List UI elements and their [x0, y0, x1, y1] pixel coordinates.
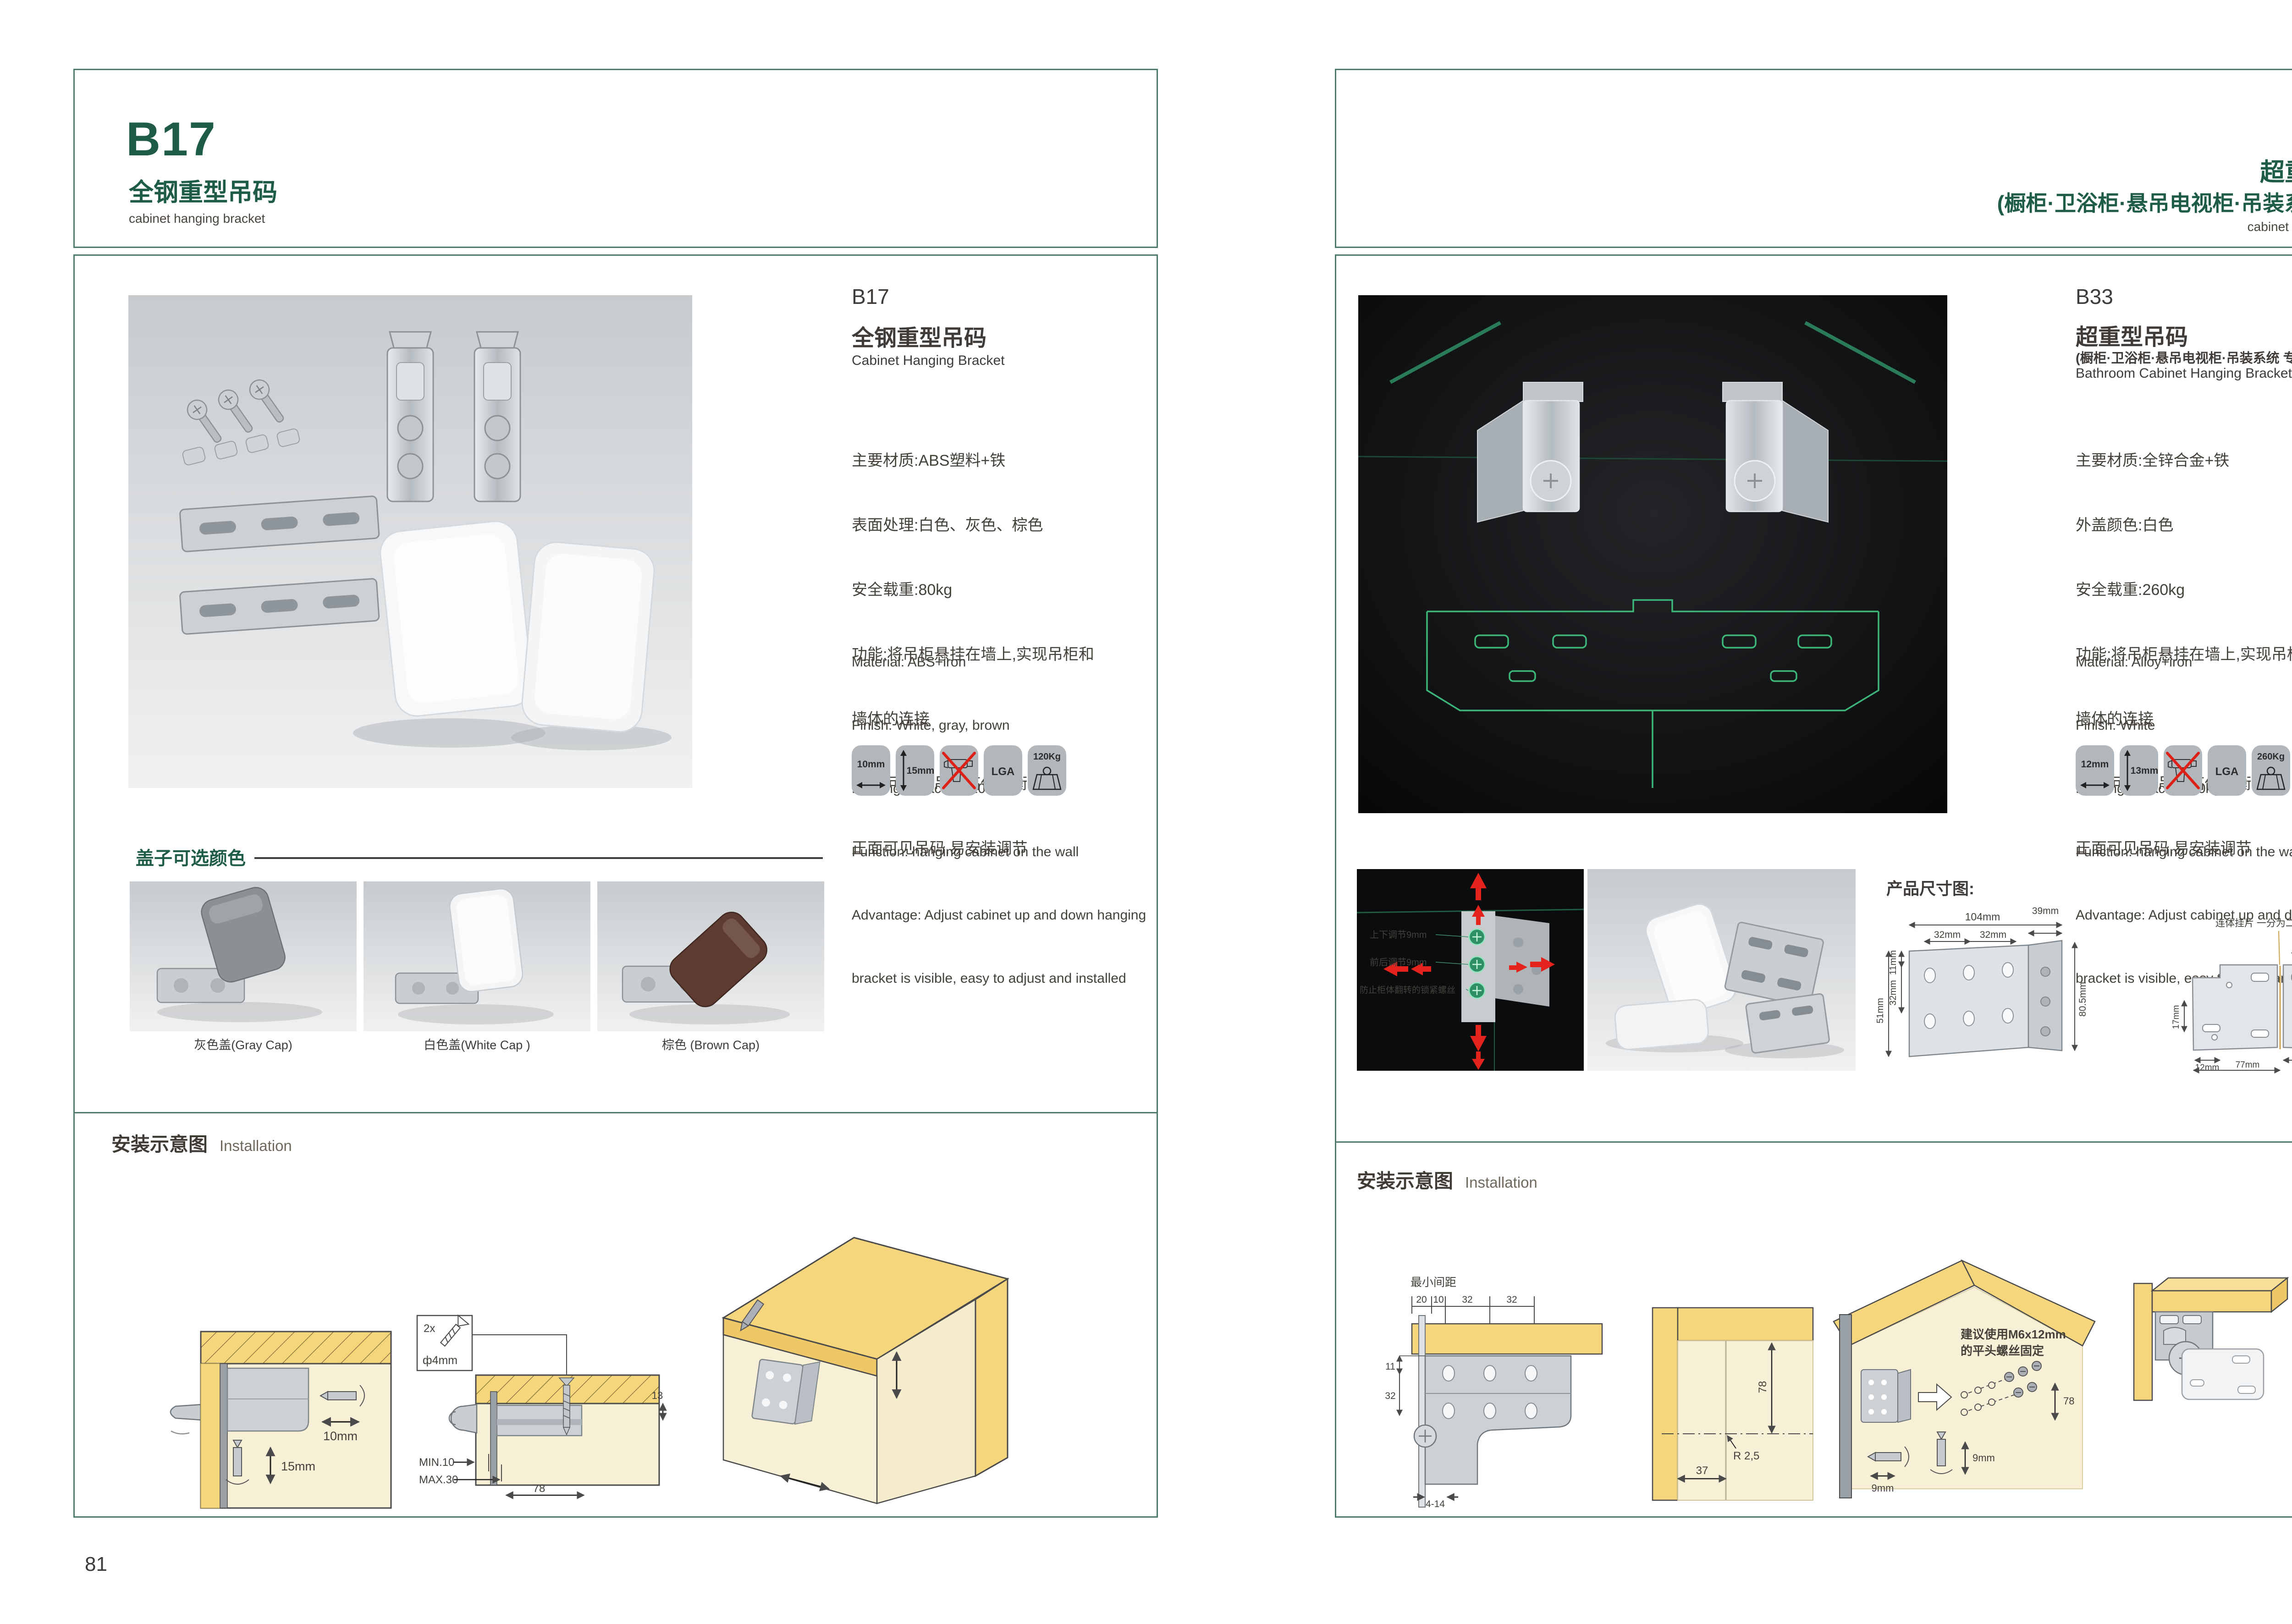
hanger-hook — [449, 1404, 477, 1433]
b33-parts-photo — [1587, 869, 1856, 1071]
gray-cap-label: 灰色盖(Gray Cap) — [130, 1035, 357, 1053]
white-cap-label: 白色盖(White Cap ) — [364, 1035, 590, 1053]
left-page-header: B17 全钢重型吊码 cabinet hanging bracket — [73, 69, 1158, 248]
dim-32mm-b: 32mm — [1980, 930, 2006, 940]
left-header-code: B17 — [126, 112, 216, 167]
no-drill-icon — [942, 751, 976, 790]
badge-no-drill — [940, 745, 978, 796]
right-install-divider — [1336, 1141, 2292, 1143]
white-cap — [448, 887, 524, 993]
right-page-content: B33 超重型吊码 (橱柜·卫浴柜·悬吊电视柜·吊装系统 专用) Bathroo… — [1335, 254, 2292, 1518]
dim-max: MAX.30 — [419, 1474, 458, 1486]
b17-name-en: Cabinet Hanging Bracket — [852, 353, 1005, 369]
badge-height: 15mm — [896, 745, 934, 796]
b17-badges: 10mm 15mm — [852, 745, 1066, 796]
annotation-updown: 上下调节9mm — [1370, 930, 1427, 940]
badge-lga: LGA — [984, 745, 1022, 796]
b33-badges: 12mm 13mm — [2076, 745, 2290, 796]
dim-51mm: 51mm — [1875, 998, 1885, 1024]
b33-name-cn: 超重型吊码 — [2076, 319, 2188, 352]
dim-37: 37 — [1696, 1464, 1708, 1477]
dim-10mm: 10mm — [323, 1429, 358, 1443]
dim-11mm: 11mm — [1888, 950, 1898, 975]
dim-11: 11 — [1385, 1361, 1395, 1372]
dim-r25: R 2,5 — [1733, 1450, 1759, 1462]
metal-plate-2 — [1746, 993, 1829, 1053]
b33-name-en: Bathroom Cabinet Hanging Bracket — [2076, 366, 2292, 381]
b17-name-cn: 全钢重型吊码 — [852, 320, 986, 352]
b17-product-photo — [128, 295, 692, 788]
weight-icon — [1032, 766, 1062, 791]
right-page-header: B33 超重型吊码 (橱柜·卫浴柜·悬吊电视柜·吊装系统 专用) cabinet… — [1335, 69, 2292, 248]
badge-width: 12mm — [2076, 745, 2114, 796]
dim-78: 78 — [533, 1482, 545, 1495]
brown-cap-label: 棕色 (Brown Cap) — [597, 1035, 824, 1053]
b17-install-diagram-cabinet — [691, 1201, 1026, 1513]
screw-note-1: 建议使用M6x12mm — [1961, 1327, 2066, 1341]
split-plate-label: 连体挂片 一分为二 — [2215, 918, 2292, 929]
badge-width: 10mm — [852, 745, 890, 796]
caps-section-rule — [254, 857, 823, 859]
dim-32b: 32 — [1506, 1294, 1517, 1305]
badge-no-drill — [2164, 745, 2202, 796]
dim-39mm: 39mm — [2032, 906, 2059, 916]
dim-80-5mm: 80.5mm — [2077, 982, 2088, 1017]
dim-12mm: 12mm — [2195, 1063, 2220, 1073]
dim-32-left: 32 — [1385, 1391, 1395, 1401]
screw-diameter: ф4mm — [423, 1354, 457, 1367]
badge-lga: LGA — [2208, 745, 2246, 796]
b33-code: B33 — [2076, 284, 2113, 309]
caps-section-title: 盖子可选颜色 — [136, 843, 246, 870]
min-gap-label: 最小间距 — [1410, 1276, 1456, 1289]
wall-hook — [171, 1404, 202, 1434]
green-adjust-screws — [1469, 929, 1485, 998]
bracket — [1861, 1370, 1911, 1422]
left-page-number: 81 — [85, 1553, 107, 1576]
bracket — [752, 1354, 820, 1426]
cover-plate — [2182, 1349, 2264, 1399]
b33-dimension-drawing-bracket: 104mm 32mm 32mm 39mm 11mm 32mm 51mm 80.5… — [1875, 903, 2155, 1073]
b33-install-diagram-perspective: 建议使用M6x12mm 的平头螺丝固定 78 9mm 9mm — [1827, 1241, 2102, 1512]
dim-78-gap: 78 — [2063, 1395, 2074, 1407]
brown-cap-photo — [597, 881, 824, 1031]
dim-32mm-a: 32mm — [1934, 930, 1961, 940]
dim-9mm-h: 9mm — [1872, 1482, 1894, 1494]
dim-15mm: 15mm — [281, 1459, 315, 1473]
badge-height: 13mm — [2120, 745, 2158, 796]
left-install-divider — [75, 1112, 1157, 1113]
left-header-title-cn: 全钢重型吊码 — [129, 172, 277, 208]
dim-min: MIN.10 — [419, 1456, 454, 1469]
b33-dimension-drawing-plates: 连体挂片 一分为二 55mm 39mm 55mm 8mm 17mm 12mm 7 — [2160, 909, 2292, 1078]
b17-install-diagram-side: 10mm 15mm — [162, 1270, 409, 1513]
white-cap-photo — [364, 881, 590, 1031]
gray-cap-photo — [130, 881, 357, 1031]
dim-104mm: 104mm — [1965, 911, 2000, 923]
b33-adjustment-photo: 上下调节9mm 前后调节9mm 防止柜体翻转的锁紧螺丝 — [1357, 869, 1584, 1071]
catalog-spread: B17 全钢重型吊码 cabinet hanging bracket — [0, 0, 2292, 1624]
annotation-frontback: 前后调节9mm — [1370, 957, 1427, 968]
dim-32mm-v: 32mm — [1888, 980, 1898, 1006]
left-header-title-en: cabinet hanging bracket — [129, 211, 265, 226]
dim-10: 10 — [1433, 1294, 1444, 1305]
left-page-content: B17 全钢重型吊码 Cabinet Hanging Bracket 主要材质:… — [73, 254, 1158, 1518]
dim-4-14: 4-14 — [1426, 1499, 1445, 1509]
dim-78: 78 — [1757, 1381, 1769, 1393]
screw-count: 2x — [424, 1322, 435, 1335]
b17-code: B17 — [852, 284, 889, 309]
dim-17mm: 17mm — [2171, 1005, 2181, 1029]
b33-product-photo — [1358, 295, 1947, 813]
right-header-title-cn: 超重型吊码 — [2260, 152, 2292, 188]
b17-install-diagram-screw: 2x ф4mm MIN — [412, 1283, 668, 1513]
weight-icon — [2256, 766, 2286, 791]
right-header-subtitle-cn: (橱柜·卫浴柜·悬吊电视柜·吊装系统 专用) — [1997, 186, 2292, 217]
width-arrow-icon — [2080, 781, 2110, 789]
dim-9mm-v: 9mm — [1972, 1452, 1995, 1464]
screw-note-2: 的平头螺丝固定 — [1961, 1344, 2044, 1358]
bracket-section — [227, 1368, 309, 1431]
b33-install-diagram-front: 最小间距 20 10 32 32 11 32 — [1373, 1264, 1620, 1512]
badge-weight: 260Kg — [2252, 745, 2290, 796]
right-plate — [2283, 965, 2292, 1050]
b17-specs-en: Material: ABS+iron Finish: White, gray, … — [852, 610, 1146, 1031]
dim-32a: 32 — [1462, 1294, 1472, 1305]
dim-20: 20 — [1416, 1294, 1427, 1305]
b33-install-diagram-section: 78 R 2,5 37 — [1634, 1283, 1818, 1512]
dimensions-title: 产品尺寸图: — [1886, 875, 1974, 899]
white-cap-lying — [1614, 999, 1709, 1051]
badge-weight: 120Kg — [1028, 745, 1066, 796]
right-header-title-en: cabinet hanging bracket — [2248, 220, 2292, 234]
no-drill-icon — [2165, 751, 2200, 790]
b33-subtitle-cn: (橱柜·卫浴柜·悬吊电视柜·吊装系统 专用) — [2076, 347, 2292, 367]
dim-13: 13 — [652, 1390, 663, 1401]
dim-77mm: 77mm — [2236, 1060, 2260, 1070]
width-arrow-icon — [856, 781, 886, 789]
left-install-title: 安装示意图Installation — [111, 1129, 292, 1157]
right-install-title: 安装示意图Installation — [1357, 1166, 1537, 1194]
annotation-lock: 防止柜体翻转的锁紧螺丝 — [1360, 985, 1455, 995]
b33-install-diagram-mounted — [2118, 1264, 2292, 1406]
